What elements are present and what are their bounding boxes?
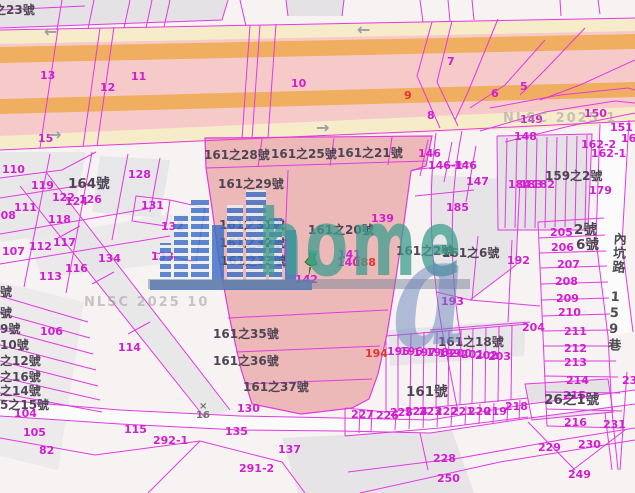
logo-a-glyph: a xyxy=(386,201,473,383)
map-canvas[interactable]: 131211151097658149150151148161162-2162-1… xyxy=(0,0,635,493)
